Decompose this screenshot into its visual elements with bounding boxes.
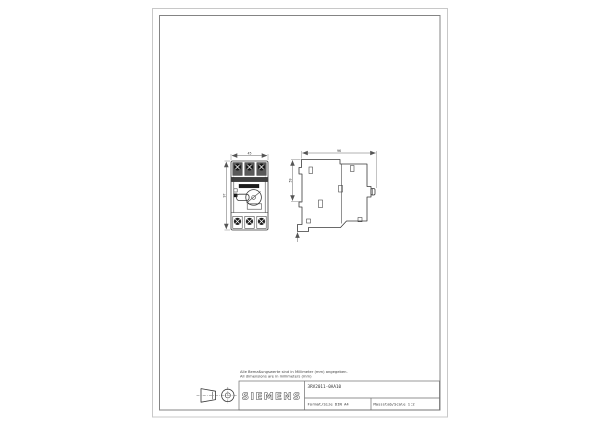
format-size-label: Format/Size DIN A4 bbox=[308, 401, 350, 406]
siemens-logo: SIEMENS bbox=[242, 392, 302, 403]
note-german: Alle Bemaßungswerte sind in Millimeter (… bbox=[240, 370, 348, 374]
front-rating-label bbox=[239, 184, 259, 188]
part-number: 3RV2011-0AA10 bbox=[308, 384, 342, 390]
note-english: All dimensions are in millimeters (mm) bbox=[240, 374, 312, 378]
sheet-outline bbox=[153, 9, 448, 418]
technical-drawing-canvas: 45 97 96 59 bbox=[0, 0, 600, 425]
scale-label: Massstab/Scale 1:2 bbox=[374, 401, 415, 406]
drawing-sheet-page: 45 97 96 59 bbox=[0, 0, 600, 425]
front-height-dimension: 97 bbox=[222, 193, 226, 197]
front-width-dimension: 45 bbox=[247, 151, 251, 155]
front-label-band bbox=[231, 177, 267, 182]
front-top-terminals bbox=[233, 163, 266, 176]
side-depth-dimension: 96 bbox=[337, 149, 341, 153]
side-upper-dimension: 59 bbox=[289, 178, 293, 182]
